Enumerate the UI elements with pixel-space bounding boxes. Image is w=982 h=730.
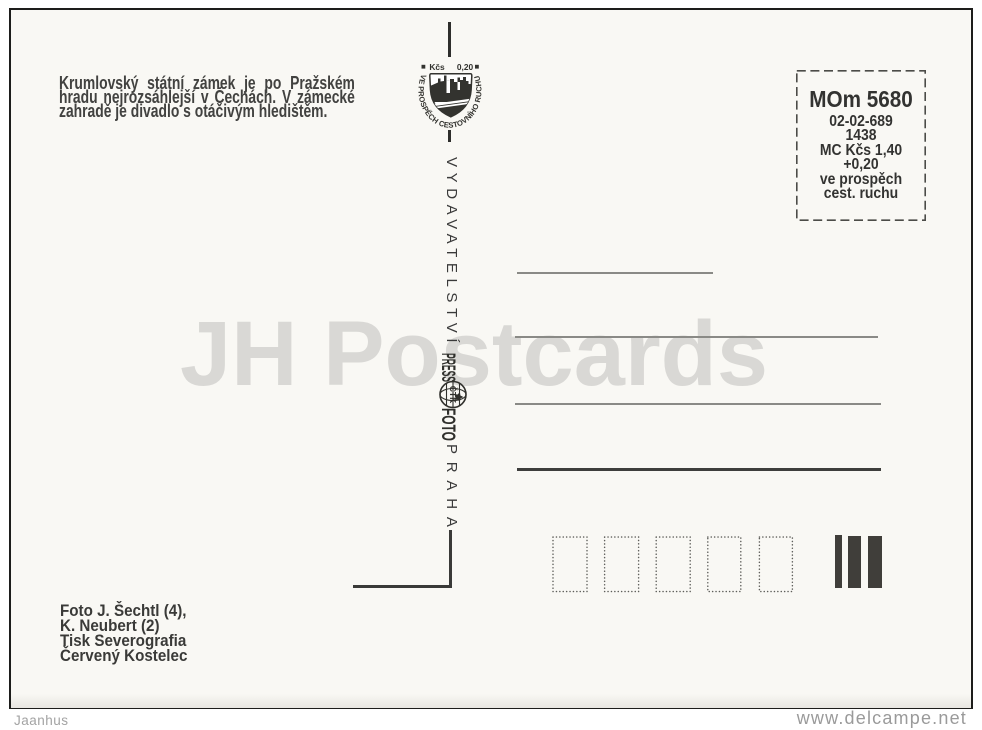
svg-text:FOTO: FOTO [437,408,459,441]
svg-text:0,20: 0,20 [457,62,474,72]
svg-text:PRESS: PRESS [437,353,459,382]
svg-text:Kčs: Kčs [429,62,445,72]
